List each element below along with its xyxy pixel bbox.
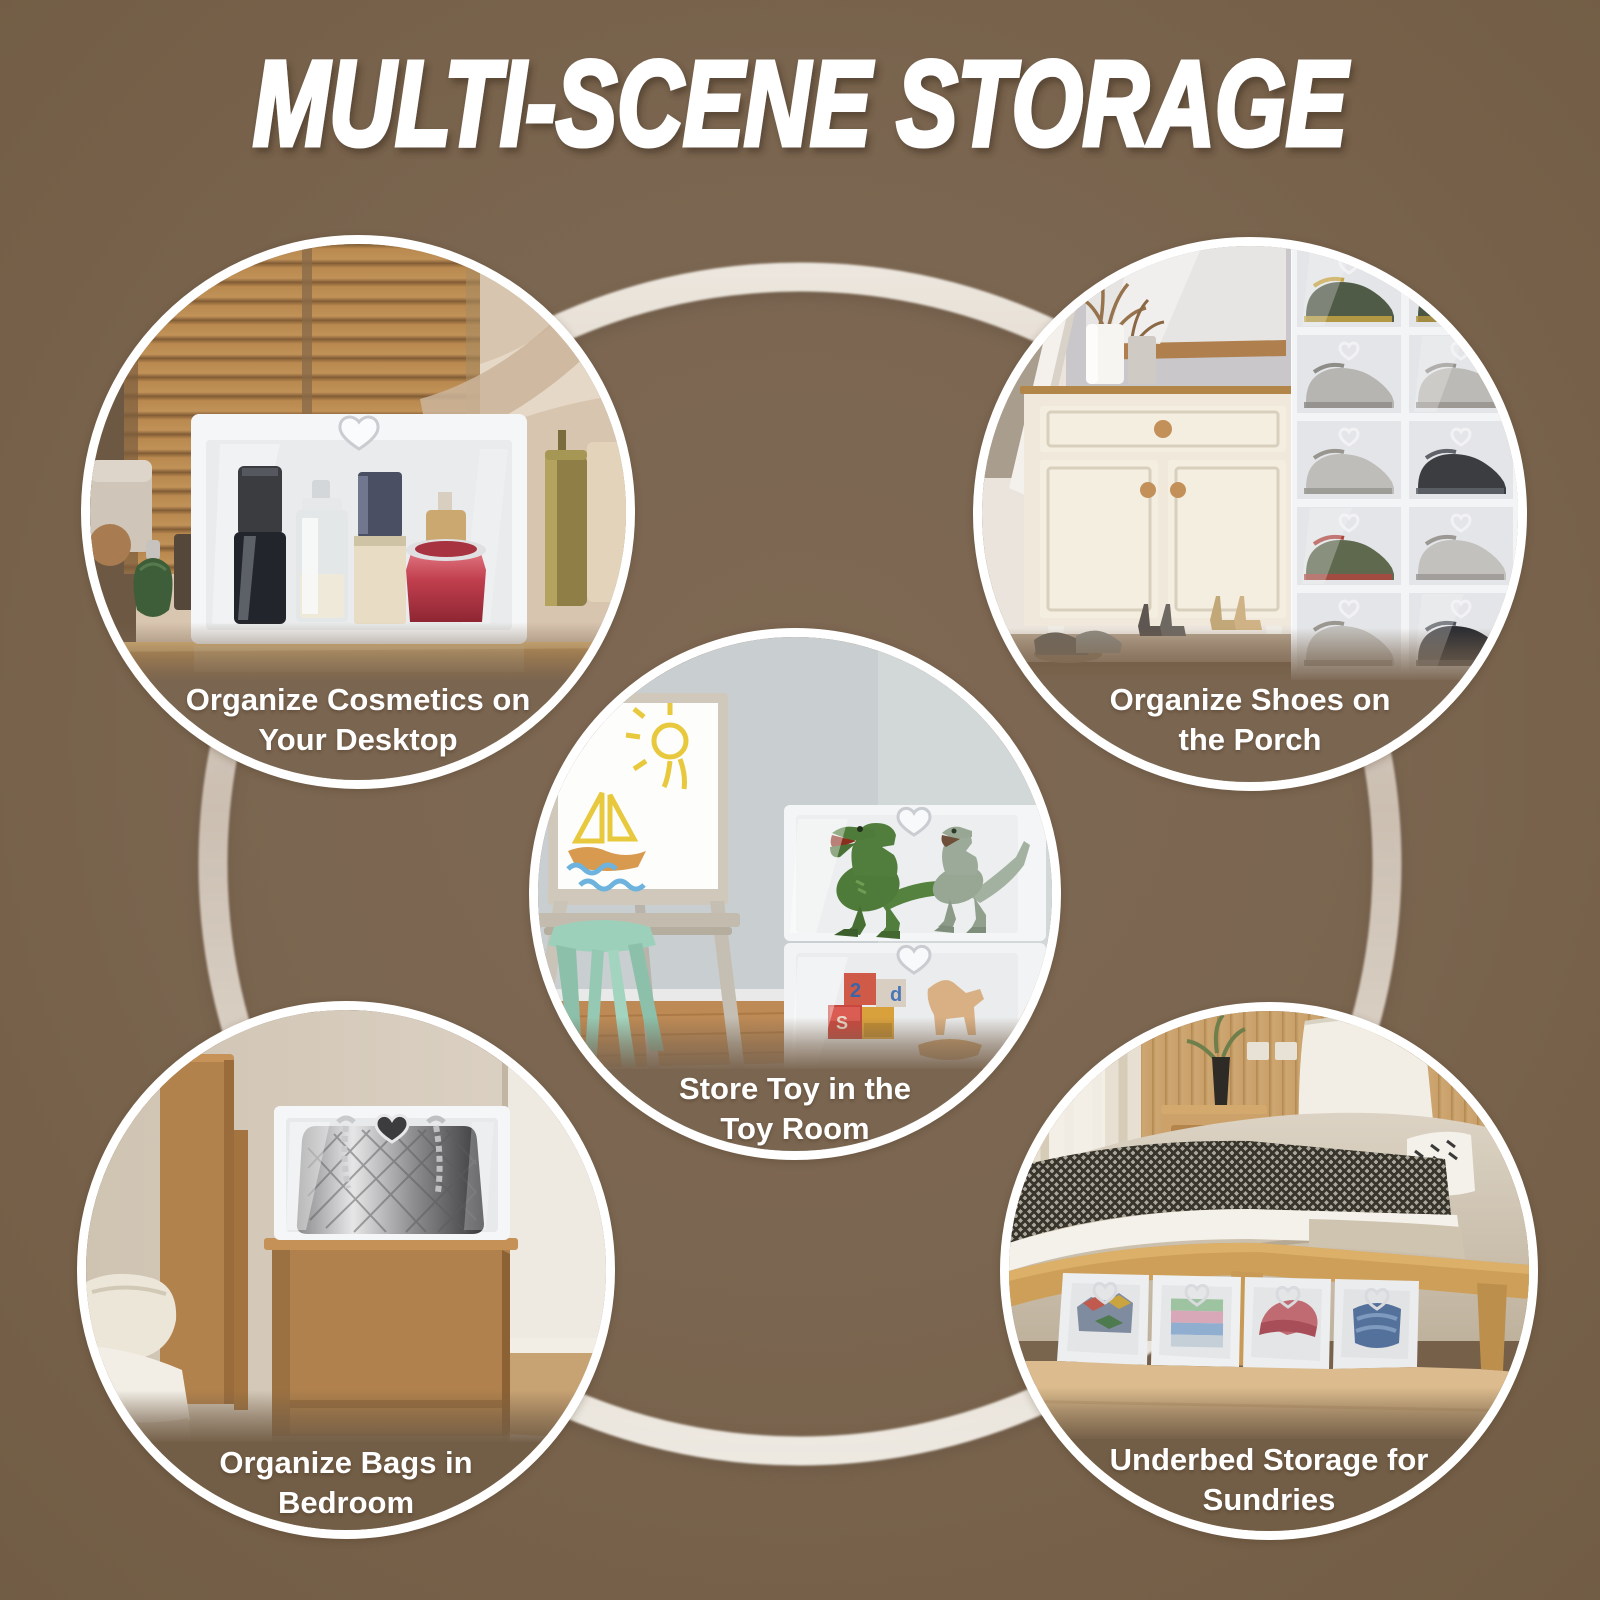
svg-text:MULTI-SCENE STORAGE: MULTI-SCENE STORAGE — [253, 35, 1349, 171]
svg-text:2: 2 — [850, 980, 861, 1002]
svg-text:d: d — [890, 984, 902, 1006]
